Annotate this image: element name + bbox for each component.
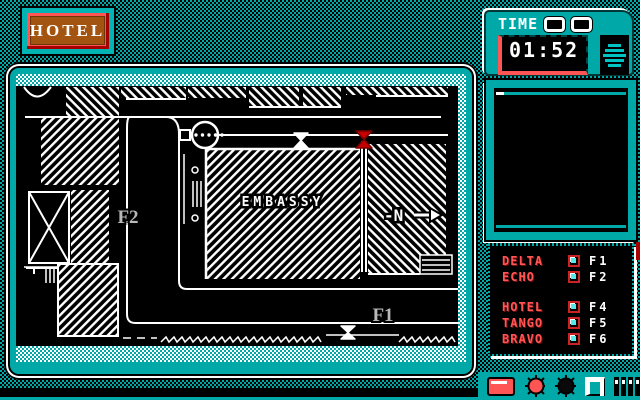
camera-viewport[interactable] (486, 80, 636, 240)
sign-label: HOTEL (30, 16, 105, 45)
position-marker-icon[interactable] (294, 133, 308, 148)
team-status-icon[interactable] (568, 333, 580, 345)
team-name: HOTEL (502, 300, 568, 314)
map-panel: EMBASSY -N (4, 62, 478, 380)
team-row-bravo[interactable]: BRAVO F6 (502, 331, 632, 346)
team-status-icon[interactable] (568, 255, 580, 267)
team-name: TANGO (502, 316, 568, 330)
embassy-building (206, 149, 360, 279)
team-row-hotel[interactable]: HOTEL F4 (502, 299, 632, 314)
game-screen: { "sign": { "text": "HOTEL" }, "clock": … (0, 0, 640, 400)
black-knob[interactable] (554, 374, 576, 398)
panel-notch (636, 242, 640, 260)
team-fkey: F5 (589, 316, 609, 330)
perimeter-buildings (121, 87, 448, 107)
sign-frame: HOTEL (22, 8, 114, 54)
sign-inner-frame: HOTEL (27, 13, 109, 49)
tactical-map[interactable]: EMBASSY -N (16, 86, 458, 346)
gate-post (180, 130, 190, 140)
timer-switch-icon[interactable] (571, 17, 592, 32)
slider-switches[interactable] (614, 377, 640, 396)
team-name: BRAVO (502, 332, 568, 346)
team-roster: DELTA F1 ECHO F2 HOTEL F4 TANGO F5 BRAVO… (488, 244, 634, 356)
time-label: TIME (498, 15, 538, 33)
team-row-echo[interactable]: ECHO F2 (502, 269, 632, 284)
compass-label: -N (384, 206, 403, 225)
time-panel: TIME 01:52 (484, 10, 634, 76)
team-status-icon[interactable] (568, 317, 580, 329)
speaker-grille-icon (600, 35, 629, 75)
team-row-tango[interactable]: TANGO F5 (502, 315, 632, 330)
crossed-building (26, 192, 72, 274)
team-name: DELTA (502, 254, 568, 268)
viewport-accent (496, 225, 626, 228)
map-bevel: EMBASSY -N (16, 74, 466, 362)
position-marker-icon[interactable] (341, 326, 355, 339)
roster-gap (502, 285, 632, 299)
team-fkey: F6 (589, 332, 609, 346)
enemy-marker-icon[interactable] (356, 131, 372, 148)
red-button[interactable] (487, 377, 515, 396)
mission-clock: 01:52 (498, 35, 588, 75)
timer-switch-icon[interactable] (544, 17, 565, 32)
building-block (41, 118, 119, 185)
monitor-button[interactable] (585, 377, 605, 396)
team-status-icon[interactable] (568, 301, 580, 313)
viewport-accent (496, 92, 626, 95)
building-block (58, 264, 118, 336)
embassy-label: EMBASSY (242, 195, 325, 210)
stairs-icon (420, 255, 452, 274)
selected-unit-sign: HOTEL (20, 6, 116, 56)
red-knob[interactable] (524, 374, 546, 398)
building-block (66, 87, 119, 116)
gate-icon (24, 267, 58, 283)
team-fkey: F2 (589, 270, 609, 284)
east-wall (362, 141, 366, 272)
building-block (368, 144, 446, 273)
driveway-arc (24, 87, 51, 97)
control-bar (478, 372, 640, 400)
team-fkey: F4 (589, 300, 609, 314)
zone-label-f1: F1 (372, 305, 393, 326)
team-status-icon[interactable] (568, 271, 580, 283)
team-fkey: F1 (589, 254, 609, 268)
roundabout-icon (192, 122, 224, 148)
perimeter-fence (123, 335, 455, 342)
building-block (71, 190, 109, 265)
team-name: ECHO (502, 270, 568, 284)
zone-label-f2: F2 (117, 207, 138, 228)
team-row-delta[interactable]: DELTA F1 (502, 253, 632, 268)
courtyard-icons (192, 167, 201, 221)
